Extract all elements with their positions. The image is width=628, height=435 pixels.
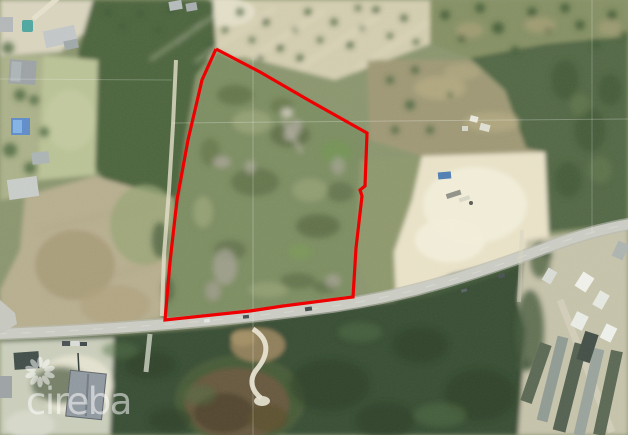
watermark-text: cireba — [26, 383, 131, 420]
aerial-photo — [0, 0, 628, 435]
aerial-listing-image: cireba — [0, 0, 628, 435]
